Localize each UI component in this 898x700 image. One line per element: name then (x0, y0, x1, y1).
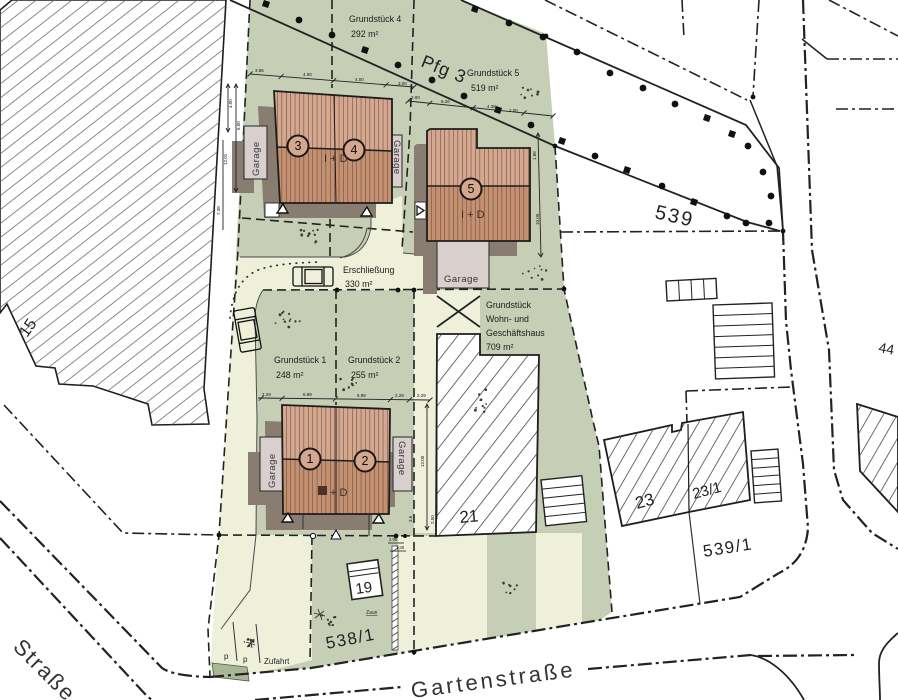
svg-text:44: 44 (877, 339, 895, 357)
svg-text:Grundstück 5: Grundstück 5 (467, 68, 519, 78)
svg-text:4.38: 4.38 (487, 104, 496, 109)
svg-text:519 m²: 519 m² (471, 83, 498, 93)
svg-text:3.86: 3.86 (255, 68, 264, 73)
svg-text:1: 1 (307, 452, 314, 466)
svg-text:4.00: 4.00 (228, 99, 233, 108)
svg-text:1.88: 1.88 (532, 151, 537, 160)
svg-text:3: 3 (295, 139, 302, 153)
svg-text:330 m²: 330 m² (345, 279, 372, 289)
svg-text:Garage: Garage (396, 441, 407, 476)
svg-text:Grundstück: Grundstück (486, 300, 532, 310)
svg-text:6.00: 6.00 (236, 121, 241, 130)
svg-text:248 m²: 248 m² (276, 370, 303, 380)
svg-text:3.00: 3.00 (398, 81, 407, 86)
svg-text:I + D: I + D (324, 153, 348, 165)
svg-text:Wohn- und: Wohn- und (486, 314, 529, 324)
svg-text:2: 2 (362, 454, 369, 468)
svg-text:1.40: 1.40 (396, 545, 405, 550)
svg-text:19: 19 (354, 579, 373, 598)
svg-text:4.00: 4.00 (303, 72, 312, 77)
svg-text:7.38: 7.38 (216, 206, 221, 215)
svg-text:Garage: Garage (444, 274, 479, 285)
svg-text:Grundstück 2: Grundstück 2 (348, 355, 400, 365)
svg-text:I + D: I + D (461, 209, 485, 221)
svg-text:292 m²: 292 m² (351, 29, 378, 39)
svg-text:+ D: + D (330, 487, 347, 499)
svg-text:6.99: 6.99 (303, 392, 312, 397)
svg-text:Geschäftshaus: Geschäftshaus (486, 328, 545, 338)
svg-text:2.50: 2.50 (430, 515, 435, 524)
svg-text:2.29: 2.29 (417, 393, 426, 398)
svg-text:Garage: Garage (267, 453, 278, 488)
svg-text:p: p (224, 652, 229, 661)
svg-text:12.01: 12.01 (223, 153, 228, 165)
svg-text:Zufahrt: Zufahrt (264, 657, 290, 666)
svg-text:2.29: 2.29 (395, 393, 404, 398)
svg-text:Grundstück 1: Grundstück 1 (274, 355, 326, 365)
svg-text:12.00: 12.00 (420, 455, 425, 467)
svg-text:2.29: 2.29 (262, 392, 271, 397)
svg-text:2.00: 2.00 (411, 95, 420, 100)
svg-text:4.00: 4.00 (355, 77, 364, 82)
svg-text:Garage: Garage (251, 141, 262, 176)
svg-text:21: 21 (459, 506, 480, 527)
svg-text:Zaun: Zaun (366, 610, 378, 616)
svg-text:4: 4 (351, 143, 358, 157)
svg-text:Grundstück 4: Grundstück 4 (349, 14, 401, 24)
svg-text:3.6: 3.6 (408, 515, 413, 522)
svg-text:2.00: 2.00 (509, 108, 518, 113)
svg-text:6.99: 6.99 (357, 393, 366, 398)
svg-text:10.00: 10.00 (535, 213, 540, 225)
svg-text:Erschließung: Erschließung (343, 265, 394, 275)
svg-text:5: 5 (468, 182, 475, 196)
svg-text:p: p (243, 655, 248, 664)
svg-text:6.26: 6.26 (441, 99, 450, 104)
svg-text:709 m²: 709 m² (486, 342, 513, 352)
svg-text:255 m²: 255 m² (351, 370, 378, 380)
